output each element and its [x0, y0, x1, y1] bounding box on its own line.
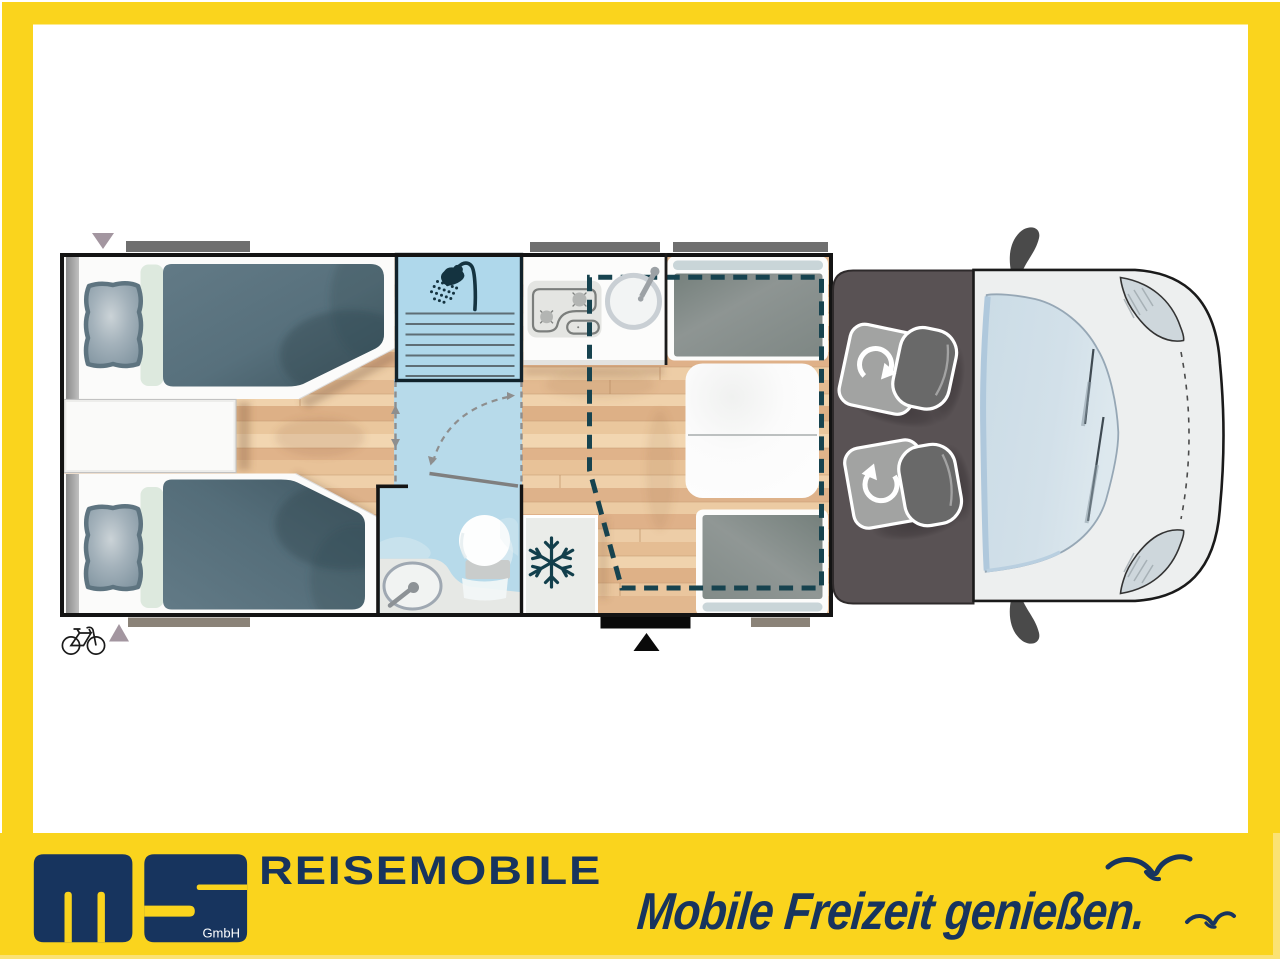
svg-text:GmbH: GmbH: [202, 926, 240, 941]
svg-text:REISEMOBILE: REISEMOBILE: [259, 848, 602, 893]
svg-text:Mobile Freizeit genießen.: Mobile Freizeit genießen.: [635, 883, 1147, 941]
